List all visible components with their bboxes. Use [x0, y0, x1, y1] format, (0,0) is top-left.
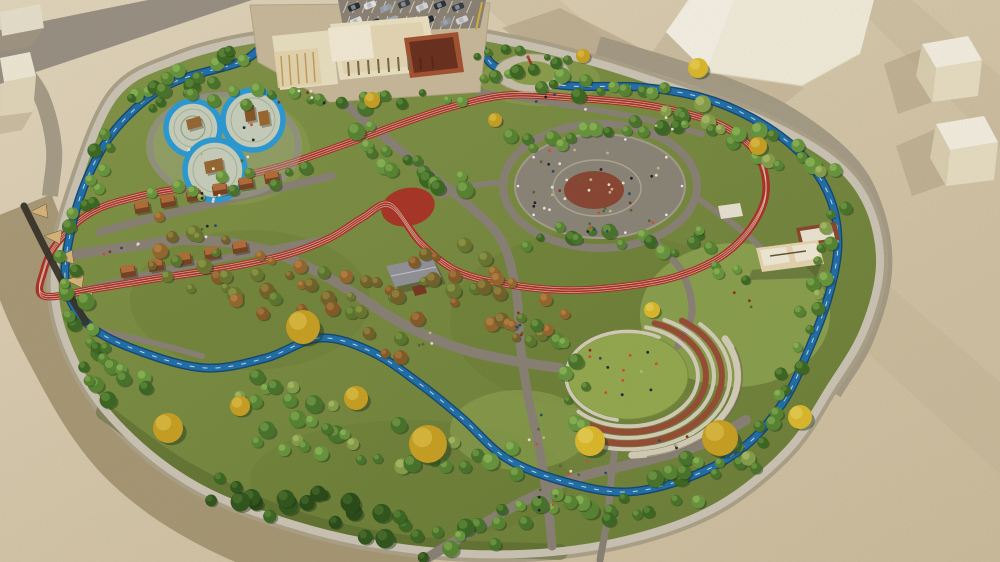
tree-highlight [755, 421, 761, 427]
tree-highlight [680, 452, 688, 460]
tree-highlight [357, 455, 362, 460]
tree-highlight [300, 162, 307, 169]
person [310, 96, 313, 99]
tree-highlight [444, 96, 448, 100]
person [611, 188, 614, 191]
tree-highlight [493, 517, 500, 524]
tree-highlight [64, 311, 71, 318]
person [535, 443, 538, 446]
tree-highlight [232, 397, 242, 407]
tree-highlight [529, 65, 535, 71]
tree-highlight [536, 82, 543, 89]
tree-highlight [206, 495, 212, 501]
tree-highlight [261, 284, 269, 292]
tree-highlight [412, 427, 432, 447]
tree-highlight [432, 181, 440, 189]
tree-highlight [87, 324, 94, 331]
person [609, 191, 612, 194]
tree-highlight [212, 249, 216, 253]
person [589, 349, 592, 352]
tree-highlight [444, 542, 453, 551]
tree-highlight [647, 88, 653, 94]
tree-highlight [185, 79, 194, 88]
person [212, 200, 215, 203]
tree-highlight [458, 182, 467, 191]
person [429, 332, 432, 335]
person [657, 167, 660, 170]
tree-highlight [597, 88, 601, 92]
tree-highlight [696, 226, 701, 231]
tree-highlight [411, 312, 419, 320]
tree-highlight [71, 265, 78, 272]
tree-highlight [742, 452, 750, 460]
tree-highlight [365, 93, 373, 101]
person [540, 414, 543, 417]
tree-highlight [792, 140, 799, 147]
tree-highlight [154, 244, 162, 252]
tree-highlight [768, 130, 774, 136]
tree-highlight [286, 271, 291, 276]
tree-highlight [347, 293, 352, 298]
tree-highlight [305, 279, 312, 286]
tree-highlight [198, 259, 206, 267]
person [558, 189, 561, 192]
tree-highlight [238, 55, 244, 61]
tree-highlight [485, 49, 489, 53]
tree-highlight [620, 84, 627, 91]
tree-highlight [85, 376, 91, 382]
tree-highlight [300, 442, 306, 448]
tree-highlight [526, 336, 532, 342]
tree-highlight [559, 338, 565, 344]
tree-highlight [643, 507, 649, 513]
tree-highlight [620, 494, 625, 499]
tree-highlight [572, 234, 578, 240]
person [212, 198, 215, 201]
tree-highlight [751, 463, 757, 469]
person [555, 496, 558, 499]
person [552, 170, 555, 173]
person [120, 247, 123, 250]
tree-highlight [293, 435, 299, 441]
tree-highlight [716, 125, 721, 130]
tree-highlight [533, 497, 542, 506]
tree-highlight [288, 382, 295, 389]
person [103, 253, 106, 256]
tree-highlight [99, 354, 105, 360]
tree-highlight [172, 64, 180, 72]
plaza-lamp [665, 156, 668, 159]
tree-highlight [820, 222, 827, 229]
tree-highlight [483, 454, 492, 463]
tree-highlight [672, 495, 678, 501]
tree-highlight [617, 240, 622, 245]
tree-highlight [229, 86, 235, 92]
tree-highlight [342, 494, 352, 504]
person [599, 357, 602, 360]
tree-highlight [589, 123, 597, 131]
tree-highlight [329, 401, 335, 407]
person [650, 389, 653, 392]
tree-highlight [377, 159, 386, 168]
tree-highlight [817, 244, 822, 249]
person [534, 201, 537, 204]
tree-highlight [355, 306, 362, 313]
tree-highlight [480, 75, 484, 79]
plaza-lamp [532, 214, 535, 217]
tree-highlight [269, 381, 277, 389]
plaza-lamp [532, 156, 535, 159]
left-box-front [0, 76, 36, 116]
tree-highlight [68, 208, 74, 214]
tree-highlight [188, 186, 194, 192]
tree-highlight [63, 220, 71, 228]
tree-highlight [149, 105, 153, 109]
tree-highlight [460, 461, 467, 468]
tree-highlight [257, 308, 264, 315]
tree-highlight [346, 388, 358, 400]
tree-highlight [497, 505, 503, 511]
tree-highlight [162, 271, 168, 277]
person [109, 250, 112, 253]
person [655, 124, 658, 127]
tree-highlight [678, 465, 686, 473]
person [558, 162, 561, 165]
tree-highlight [489, 114, 496, 121]
tree-highlight [172, 256, 178, 262]
person [250, 123, 253, 126]
person [206, 225, 209, 228]
person [540, 160, 543, 163]
person [212, 167, 215, 170]
person [252, 139, 255, 142]
tree-highlight [393, 511, 400, 518]
tree-highlight [638, 230, 644, 236]
tree-highlight [208, 95, 215, 102]
tree-highlight [516, 46, 521, 51]
person [418, 344, 421, 347]
tree-highlight [279, 444, 286, 451]
tree-highlight [187, 226, 195, 234]
person [588, 355, 591, 358]
person [241, 159, 244, 162]
person [629, 354, 632, 357]
person [243, 126, 246, 129]
person [323, 102, 326, 105]
tree-highlight [284, 394, 292, 402]
person [604, 391, 607, 394]
tree-highlight [432, 253, 436, 257]
tree-highlight [688, 237, 695, 244]
tree-highlight [217, 171, 223, 177]
person [520, 334, 523, 337]
person [187, 148, 190, 151]
person [591, 171, 594, 174]
tree-highlight [361, 276, 367, 282]
tree-highlight [341, 271, 348, 278]
tree-highlight [117, 364, 123, 370]
tree-highlight [340, 429, 346, 435]
park-aerial-render [0, 0, 1000, 562]
tree-highlight [716, 459, 721, 464]
tree-highlight [742, 276, 747, 281]
person [200, 153, 203, 156]
person [606, 152, 609, 155]
tree-highlight [550, 80, 555, 85]
person [658, 439, 661, 442]
tree-highlight [457, 97, 463, 103]
person [628, 192, 631, 195]
tree-highlight [260, 422, 269, 431]
tree-highlight [796, 361, 803, 368]
tree-highlight [556, 223, 561, 228]
spiral-mast-top [526, 55, 529, 58]
tree-highlight [392, 418, 400, 426]
tree-highlight [693, 496, 700, 503]
tree-highlight [639, 127, 645, 133]
tree-highlight [252, 269, 259, 276]
person [551, 186, 554, 189]
tree-highlight [457, 171, 463, 177]
tree-highlight [690, 59, 700, 69]
tree-highlight [225, 46, 231, 52]
tree-highlight [679, 112, 685, 118]
tree-highlight [531, 320, 538, 327]
tree-highlight [490, 71, 497, 78]
tree-highlight [374, 505, 384, 515]
tree-highlight [364, 328, 371, 335]
tree-highlight [307, 396, 316, 405]
plaza-lamp [624, 231, 627, 234]
tree-highlight [520, 517, 527, 524]
tree-highlight [420, 277, 425, 282]
tree-highlight [149, 81, 156, 88]
tree-highlight [638, 86, 644, 92]
building-detail-line [378, 59, 379, 73]
person [548, 149, 551, 152]
person [622, 182, 625, 185]
person [606, 366, 609, 369]
tree-highlight [609, 82, 615, 88]
tree-highlight [660, 83, 666, 89]
tree-highlight [395, 351, 403, 359]
tree-highlight [88, 198, 94, 204]
tree-highlight [695, 96, 704, 105]
person [604, 472, 607, 475]
tree-highlight [397, 99, 403, 105]
plaza-fountain-circle [564, 171, 624, 209]
person [539, 489, 542, 492]
tree-highlight [92, 343, 98, 349]
person [277, 101, 280, 104]
tree-highlight [774, 390, 780, 396]
tree-highlight [230, 294, 237, 301]
person [306, 91, 309, 94]
tree-highlight [229, 186, 235, 192]
tree-highlight [582, 382, 587, 387]
tree-highlight [559, 367, 567, 375]
tree-highlight [162, 73, 169, 80]
tree-highlight [405, 456, 414, 465]
person [544, 96, 547, 99]
tree-highlight [506, 442, 514, 450]
tree-highlight [289, 312, 307, 330]
tree-highlight [173, 181, 180, 188]
person [589, 226, 592, 229]
tree-highlight [512, 334, 517, 339]
person [528, 438, 531, 441]
tree-highlight [89, 144, 96, 151]
tree-highlight [806, 325, 811, 330]
person [600, 168, 603, 171]
tree-highlight [360, 92, 366, 98]
tree-highlight [790, 407, 802, 419]
tree-highlight [306, 416, 312, 422]
person [552, 503, 555, 506]
tree-highlight [261, 384, 267, 390]
tree-highlight [470, 284, 476, 290]
tree-highlight [289, 88, 295, 94]
tree-highlight [157, 84, 165, 92]
tree-highlight [472, 450, 479, 457]
tree-highlight [366, 122, 371, 127]
tree-highlight [105, 360, 113, 368]
tree-highlight [359, 531, 367, 539]
tree-highlight [100, 129, 106, 135]
person [548, 208, 551, 211]
tree-highlight [645, 236, 652, 243]
tree-highlight [187, 89, 194, 96]
person [201, 228, 204, 231]
tree-highlight [510, 468, 517, 475]
person [137, 242, 140, 245]
person [655, 174, 658, 177]
person [621, 379, 624, 382]
person [547, 163, 550, 166]
person [733, 291, 736, 294]
person [569, 470, 572, 473]
tree-highlight [735, 457, 742, 464]
tree-highlight [840, 202, 847, 209]
tree-highlight [523, 134, 529, 140]
tree-highlight [774, 161, 780, 167]
tree-highlight [552, 334, 560, 342]
tree-highlight [827, 210, 832, 215]
person [604, 207, 607, 210]
tree-highlight [330, 517, 337, 524]
tree-highlight [449, 437, 456, 444]
tree-highlight [118, 372, 126, 380]
person [538, 496, 541, 499]
building-detail-line [408, 56, 409, 70]
person [532, 191, 535, 194]
tree-highlight [502, 45, 507, 50]
tree-highlight [517, 314, 522, 319]
person [640, 370, 643, 373]
tree-highlight [705, 242, 712, 249]
person [588, 189, 591, 192]
person [630, 177, 633, 180]
tree-highlight [522, 242, 528, 248]
tree-highlight [264, 510, 271, 517]
tree-highlight [492, 273, 499, 280]
tree-highlight [193, 73, 199, 79]
tree-highlight [208, 77, 214, 83]
person [671, 128, 674, 131]
tree-highlight [657, 245, 665, 253]
tree-highlight [140, 382, 147, 389]
tree-highlight [580, 75, 587, 82]
tree-highlight [385, 164, 393, 172]
tree-highlight [814, 257, 819, 262]
person [205, 235, 208, 238]
tree-highlight [664, 465, 672, 473]
tree-highlight [61, 279, 66, 284]
tree-highlight [546, 131, 554, 139]
building-detail-line [368, 60, 369, 74]
tree-highlight [648, 471, 657, 480]
tree-highlight [419, 553, 425, 559]
tree-highlight [545, 54, 548, 57]
tree-highlight [285, 168, 289, 172]
tree-highlight [409, 257, 415, 263]
tree-highlight [367, 148, 373, 154]
tree-highlight [776, 368, 782, 374]
tree-highlight [54, 251, 61, 258]
person [655, 362, 658, 365]
tree-highlight [377, 530, 387, 540]
tree-highlight [403, 155, 408, 160]
plaza-lamp [624, 138, 627, 141]
tree-highlight [511, 65, 519, 73]
person [622, 369, 625, 372]
tree-highlight [156, 98, 161, 103]
tree-highlight [474, 53, 478, 57]
person [750, 306, 753, 309]
tree-highlight [419, 90, 423, 94]
person [430, 342, 433, 345]
tree-highlight [381, 91, 387, 97]
person [577, 473, 580, 476]
tree-highlight [477, 280, 485, 288]
tree-highlight [505, 130, 513, 138]
person [515, 326, 518, 329]
tree-highlight [767, 416, 775, 424]
tree-highlight [252, 84, 259, 91]
person [532, 205, 535, 208]
tree-highlight [733, 266, 738, 271]
tree-highlight [806, 157, 815, 166]
tree-highlight [270, 180, 276, 186]
person [517, 312, 520, 315]
tree-highlight [829, 164, 836, 171]
person [586, 460, 589, 463]
person [652, 221, 655, 224]
person [686, 435, 689, 438]
tree-highlight [489, 267, 495, 273]
tree-highlight [147, 188, 153, 194]
person [568, 473, 571, 476]
tree-highlight [516, 501, 522, 507]
tree-highlight [232, 493, 242, 503]
play-structure [258, 110, 270, 126]
tree-highlight [314, 94, 320, 100]
building-detail-line [398, 57, 399, 71]
tree-highlight [540, 294, 547, 301]
tree-highlight [752, 123, 761, 132]
tree-highlight [707, 125, 713, 131]
person [309, 90, 312, 93]
